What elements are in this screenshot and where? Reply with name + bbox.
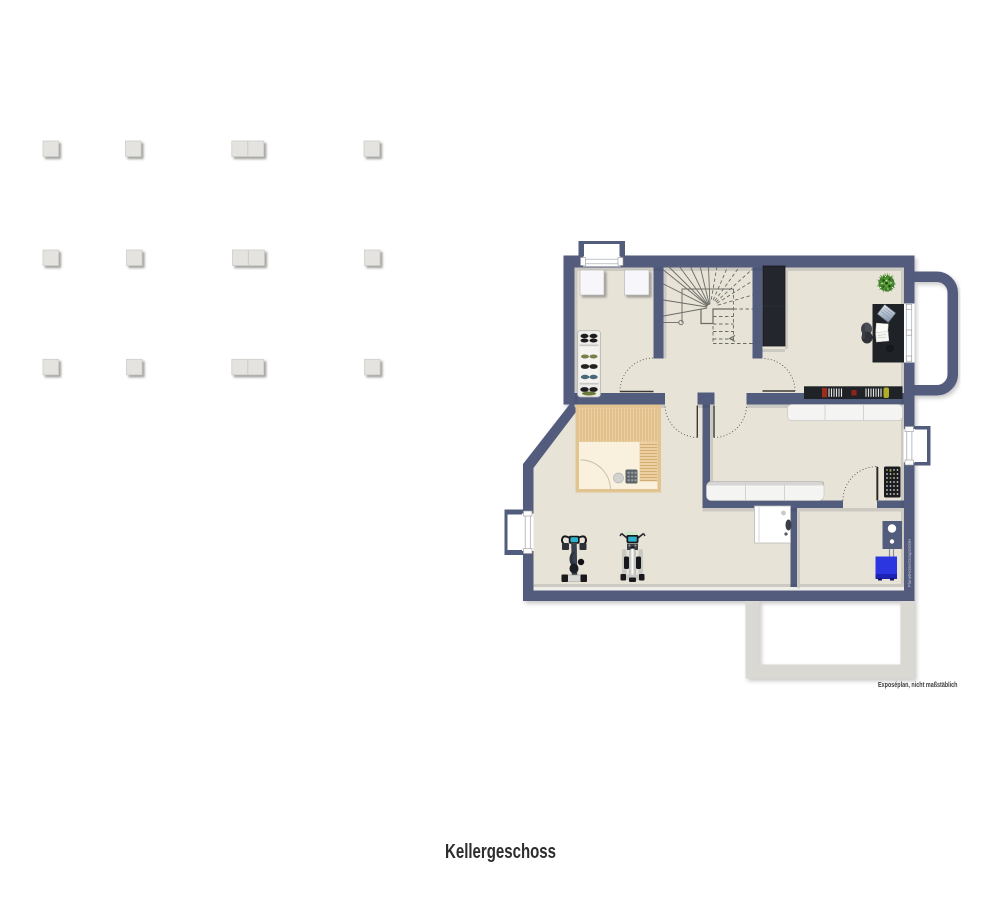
svg-text:Exposéplan, nicht maßstäblich: Exposéplan, nicht maßstäblich: [878, 682, 958, 689]
svg-text:PlanetHomeGroupGmbH: PlanetHomeGroupGmbH: [907, 539, 912, 587]
svg-text:Kellergeschoss: Kellergeschoss: [445, 840, 556, 863]
